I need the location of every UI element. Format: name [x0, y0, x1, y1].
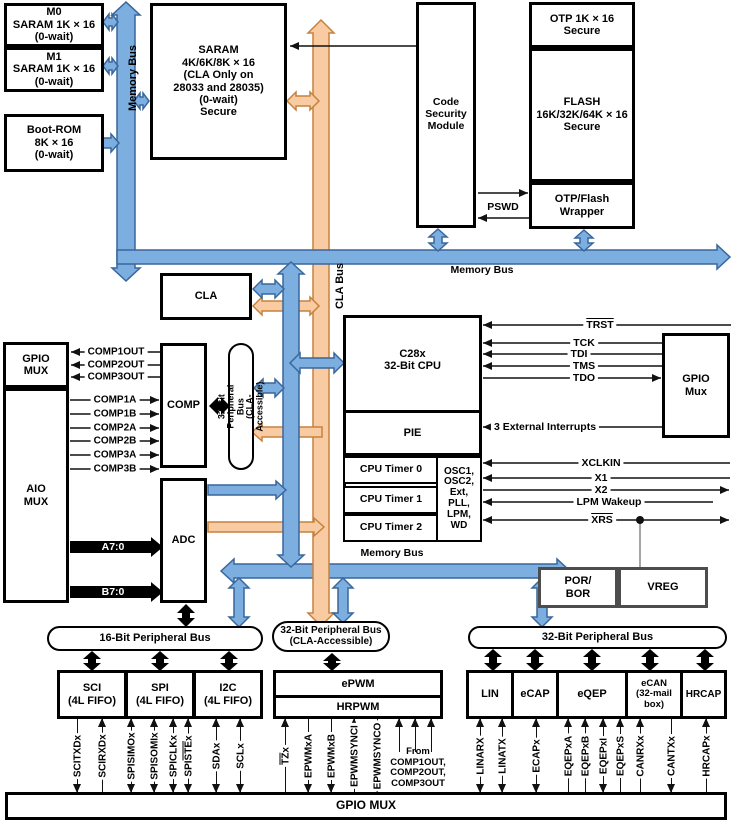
memory-bus-top-label: Memory Bus [447, 264, 516, 276]
box-osc-pll-wd: OSC1, OSC2, Ext, PLL, LPM, WD [436, 456, 482, 542]
por-bor-label: POR/ BOR [565, 575, 592, 600]
oval-32bit-peripheral-bus-vertical: 32-Bit Peripheral Bus (CLA-Accessible) [228, 343, 254, 470]
box-hrcap: HRCAP [680, 670, 727, 719]
box-por-bor: POR/ BOR [538, 567, 618, 608]
csm-label: Code Security Module [425, 97, 466, 133]
box-ecan: eCAN (32-mail box) [625, 670, 683, 719]
i2c-label: I2C (4L FIFO) [204, 682, 252, 707]
comp1a-label: COMP1A [91, 395, 140, 406]
comp3b-label: COMP3B [91, 464, 140, 475]
x2-label: X2 [592, 484, 611, 496]
hrcap-label: HRCAP [686, 689, 722, 700]
box-gpio-mux-right: GPIO Mux [662, 333, 730, 438]
box-vreg: VREG [618, 567, 708, 608]
aio-mux-label: AIO MUX [24, 483, 48, 508]
wrapper-label: OTP/Flash Wrapper [555, 193, 609, 218]
otp-label: OTP 1K × 16 Secure [550, 13, 614, 38]
ecap-label: eCAP [520, 688, 549, 700]
pswd-label: PSWD [484, 201, 522, 213]
box-sci: SCI (4L FIFO) [57, 670, 127, 719]
tdi-label: TDI [568, 348, 591, 360]
cpu-label: C28x 32-Bit CPU [384, 348, 441, 373]
p32-label: 32-Bit Peripheral Bus [542, 632, 653, 644]
xclkin-label: XCLKIN [578, 457, 623, 469]
box-cpu-timer0: CPU Timer 0 [343, 456, 439, 484]
box-lin: LIN [466, 670, 514, 719]
vreg-label: VREG [647, 581, 678, 593]
sci-label: SCI (4L FIFO) [68, 682, 116, 707]
lpm-wakeup-label: LPM Wakeup [574, 496, 645, 508]
x1-label: X1 [592, 472, 611, 484]
box-code-security-module: Code Security Module [416, 2, 476, 228]
eqep-label: eQEP [577, 688, 606, 700]
memory-bus-vertical-label: Memory Bus [127, 45, 139, 111]
box-hrpwm: HRPWM [273, 695, 443, 719]
box-otp: OTP 1K × 16 Secure [529, 2, 635, 48]
box-gpio-mux-left: GPIO MUX [3, 342, 69, 388]
lin-label: LIN [481, 688, 499, 700]
comp3out-label: COMP3OUT [85, 372, 148, 383]
timer0-label: CPU Timer 0 [360, 464, 422, 476]
spi-label: SPI (4L FIFO) [136, 682, 184, 707]
m1-label: M1 SARAM 1K × 16 (0-wait) [13, 51, 95, 88]
m0-label: M0 SARAM 1K × 16 (0-wait) [13, 6, 95, 43]
saram-label: SARAM 4K/6K/8K × 16 (CLA Only on 28033 a… [173, 44, 264, 119]
boot-rom-label: Boot-ROM 8K × 16 (0-wait) [27, 124, 81, 161]
box-comp: COMP [160, 343, 207, 468]
p16-label: 16-Bit Peripheral Bus [99, 633, 210, 645]
box-cpu-timer2: CPU Timer 2 [343, 514, 439, 542]
box-i2c: I2C (4L FIFO) [193, 670, 263, 719]
block-diagram: M0 SARAM 1K × 16 (0-wait) M1 SARAM 1K × … [0, 0, 732, 823]
comp1out-label: COMP1OUT [85, 347, 148, 358]
gpio-mux-left-label: GPIO MUX [22, 353, 50, 378]
cla-bus-label: CLA Bus [334, 263, 346, 309]
arrow-up-icon [98, 718, 106, 727]
box-eqep: eQEP [556, 670, 628, 719]
hrpwm-label: HRPWM [337, 701, 380, 713]
oval-32bit-peripheral-bus-cla: 32-Bit Peripheral Bus (CLA-Accessible) [272, 621, 390, 652]
timer1-label: CPU Timer 1 [360, 494, 422, 506]
flash-label: FLASH 16K/32K/64K × 16 Secure [536, 96, 627, 133]
tms-label: TMS [570, 360, 598, 372]
box-m1-saram: M1 SARAM 1K × 16 (0-wait) [4, 47, 104, 92]
osc-label: OSC1, OSC2, Ext, PLL, LPM, WD [444, 467, 474, 532]
ecan-label: eCAN (32-mail box) [636, 679, 672, 710]
p32cla-vert-label: 32-Bit Peripheral Bus (CLA-Accessible) [217, 381, 264, 431]
pie-label: PIE [404, 427, 422, 439]
p32cla-label: 32-Bit Peripheral Bus (CLA-Accessible) [280, 626, 381, 647]
box-spi: SPI (4L FIFO) [125, 670, 195, 719]
comp3a-label: COMP3A [91, 450, 140, 461]
gpio-mux-bottom-label: GPIO MUX [336, 799, 396, 813]
cla-label: CLA [195, 290, 218, 302]
comp2b-label: COMP2B [91, 436, 140, 447]
box-cpu-timer1: CPU Timer 1 [343, 486, 439, 514]
cpu-label-area: C28x 32-Bit CPU [343, 330, 482, 390]
comp-label: COMP [167, 399, 200, 411]
box-flash: FLASH 16K/32K/64K × 16 Secure [529, 48, 635, 182]
trst-label: TRST [583, 319, 616, 331]
box-aio-mux: AIO MUX [3, 388, 69, 603]
box-otp-flash-wrapper: OTP/Flash Wrapper [529, 182, 635, 229]
oval-32bit-peripheral-bus: 32-Bit Peripheral Bus [468, 626, 727, 649]
box-saram: SARAM 4K/6K/8K × 16 (CLA Only on 28033 a… [150, 3, 287, 160]
box-gpio-mux-bottom: GPIO MUX [5, 792, 727, 820]
box-cla: CLA [160, 273, 252, 320]
tdo-label: TDO [570, 372, 598, 384]
adc-a-channels-label: A7:0 [99, 541, 128, 553]
box-pie: PIE [343, 410, 482, 456]
box-adc: ADC [160, 478, 207, 603]
comp2a-label: COMP2A [91, 423, 140, 434]
gpio-mux-right-label: GPIO Mux [682, 373, 710, 398]
box-epwm: ePWM [273, 670, 443, 698]
box-ecap: eCAP [511, 670, 559, 719]
comp2out-label: COMP2OUT [85, 360, 148, 371]
memory-bus-mid-label: Memory Bus [357, 547, 426, 559]
box-m0-saram: M0 SARAM 1K × 16 (0-wait) [4, 3, 104, 47]
timer2-label: CPU Timer 2 [360, 522, 422, 534]
epwm-label: ePWM [342, 678, 375, 690]
xrs-label: XRS [588, 514, 616, 526]
box-boot-rom: Boot-ROM 8K × 16 (0-wait) [4, 114, 104, 172]
adc-label: ADC [172, 534, 196, 546]
from-comp-text: From COMP1OUT, COMP2OUT, COMP3OUT [381, 747, 455, 790]
comp1b-label: COMP1B [91, 409, 140, 420]
external-interrupts-label: 3 External Interrupts [491, 421, 599, 433]
adc-b-channels-label: B7:0 [99, 586, 128, 598]
oval-16bit-peripheral-bus: 16-Bit Peripheral Bus [47, 626, 263, 651]
